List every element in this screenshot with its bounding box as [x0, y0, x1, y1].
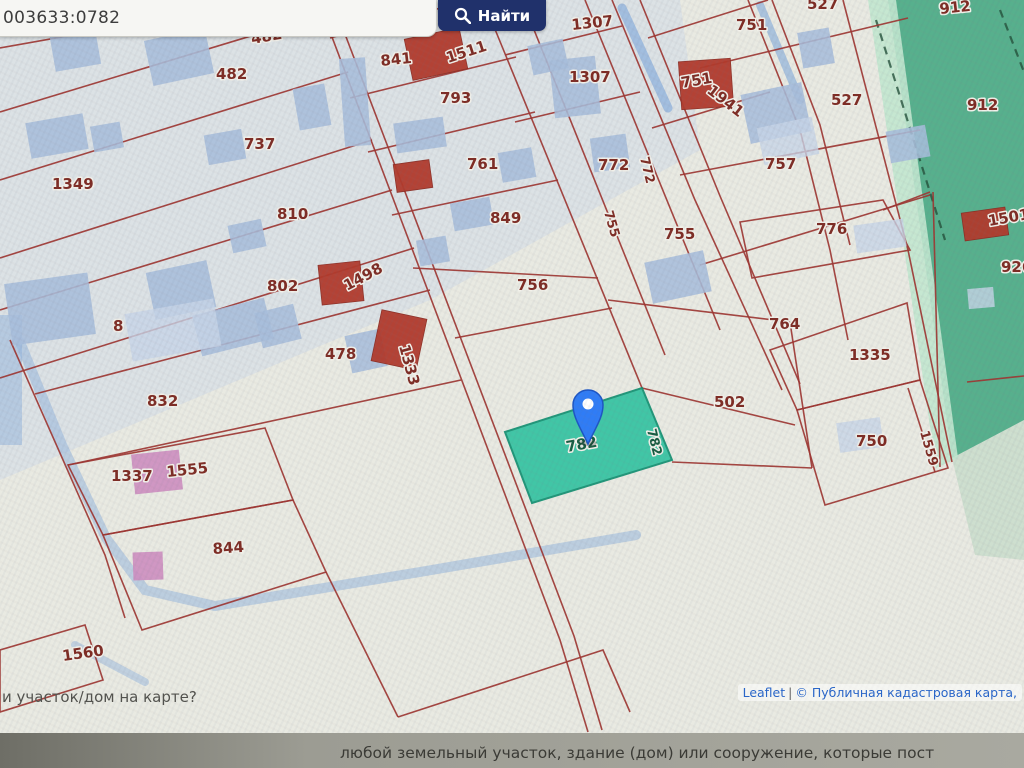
cadastral-map[interactable]: 4824827371349810802149884781333832133715… [0, 0, 1024, 768]
map-canvas[interactable]: 4824827371349810802149884781333832133715… [0, 0, 1024, 768]
find-button-label: Найти [478, 7, 530, 25]
parcel-label: 482 [216, 65, 247, 83]
parcel-label: 764 [769, 315, 800, 333]
parcel-label: 761 [467, 155, 498, 173]
parcel-label: 926 [1001, 258, 1024, 276]
parcel-label: 1335 [849, 346, 891, 364]
parcel-label: 810 [277, 205, 308, 223]
parcel-label: 912 [967, 96, 998, 114]
parcel-label: 832 [147, 392, 178, 410]
parcel-label: 478 [325, 345, 356, 363]
info-banner-text: любой земельный участок, здание (дом) ил… [340, 744, 934, 762]
parcel-label: 793 [440, 89, 471, 107]
parcel-label: 849 [490, 209, 521, 227]
parcel-label: 8 [113, 317, 123, 335]
parcel-label: 737 [244, 135, 275, 153]
search-bar: 003633:0782 [0, 0, 437, 37]
find-button[interactable]: Найти [438, 0, 546, 31]
parcel-label: 1307 [569, 68, 611, 86]
parcel-label: 1337 [111, 467, 153, 485]
parcel-label: 1349 [52, 175, 94, 193]
parcel-label: 502 [714, 393, 745, 411]
attribution-separator: | [788, 685, 792, 700]
info-banner: любой земельный участок, здание (дом) ил… [0, 733, 1024, 768]
parcel-label: 751 [736, 16, 767, 34]
parcel-label: 755 [664, 225, 695, 243]
question-text: и участок/дом на карте? [2, 688, 197, 706]
source-link[interactable]: © Публичная кадастровая карта, [795, 685, 1017, 700]
map-attribution: Leaflet|© Публичная кадастровая карта, [738, 684, 1022, 701]
app-window: 4824827371349810802149884781333832133715… [0, 0, 1024, 768]
parcel-label: 750 [856, 432, 887, 450]
parcel-label: 841 [380, 49, 413, 70]
parcel-label: 757 [765, 155, 796, 173]
parcel-label: 844 [212, 538, 244, 558]
parcel-label: 527 [807, 0, 838, 13]
parcel-label: 527 [831, 91, 862, 109]
search-icon [454, 7, 471, 24]
parcel-label: 772 [598, 156, 629, 174]
parcel-label: 802 [267, 277, 298, 295]
leaflet-link[interactable]: Leaflet [743, 685, 786, 700]
search-input[interactable]: 003633:0782 [3, 8, 120, 28]
parcel-label: 776 [816, 220, 847, 238]
parcel-label: 756 [517, 276, 548, 294]
